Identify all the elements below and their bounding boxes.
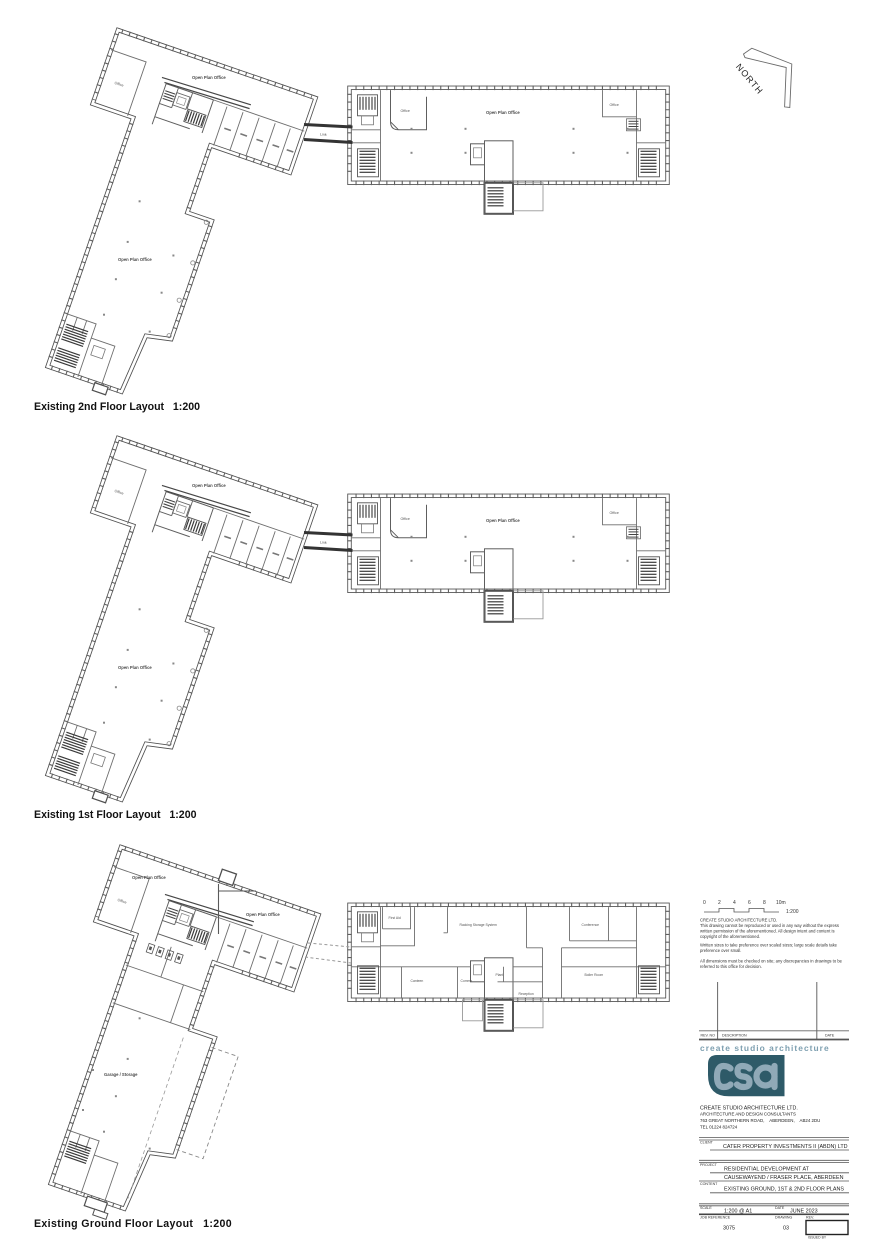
svg-text:TEL 01224 824724: TEL 01224 824724 bbox=[700, 1125, 738, 1130]
svg-text:DESCRIPTION: DESCRIPTION bbox=[722, 1034, 747, 1038]
svg-text:Written sizes to take preferen: Written sizes to take preference over sc… bbox=[700, 943, 838, 948]
svg-text:Open Plan Office: Open Plan Office bbox=[118, 665, 152, 670]
svg-text:preference over small.: preference over small. bbox=[700, 948, 741, 953]
svg-text:All dimensions must be checked: All dimensions must be checked on site; … bbox=[700, 959, 843, 964]
svg-text:Racking Storage System: Racking Storage System bbox=[460, 923, 497, 927]
svg-text:Open Plan Office: Open Plan Office bbox=[132, 875, 166, 880]
svg-text:CATER PROPERTY INVESTMENTS II: CATER PROPERTY INVESTMENTS II (ABDN) LTD bbox=[723, 1144, 848, 1150]
svg-text:CONTENT: CONTENT bbox=[700, 1182, 718, 1186]
svg-text:SCALE: SCALE bbox=[700, 1206, 712, 1210]
svg-text:Open Plan Office: Open Plan Office bbox=[118, 257, 152, 262]
svg-text:referred to this office for de: referred to this office for decision. bbox=[700, 964, 762, 969]
svg-text:3075: 3075 bbox=[723, 1226, 735, 1232]
svg-text:1:200: 1:200 bbox=[786, 909, 799, 915]
svg-text:create studio architecture: create studio architecture bbox=[700, 1043, 830, 1053]
svg-text:CAUSEWAYEND / FRASER PLACE, AB: CAUSEWAYEND / FRASER PLACE, ABERDEEN bbox=[724, 1175, 844, 1181]
svg-text:8: 8 bbox=[763, 900, 766, 906]
svg-text:2: 2 bbox=[718, 900, 721, 906]
svg-text:Canteen: Canteen bbox=[411, 979, 424, 983]
svg-text:CREATE STUDIO ARCHITECTURE LTD: CREATE STUDIO ARCHITECTURE LTD. bbox=[700, 918, 777, 923]
svg-text:Conference: Conference bbox=[582, 923, 600, 927]
svg-text:Existing 2nd Floor Layout 1:: Existing 2nd Floor Layout 1:200 bbox=[34, 401, 200, 413]
svg-text:Link: Link bbox=[320, 541, 327, 545]
svg-text:ARCHITECTURE AND DESIGN CONSUL: ARCHITECTURE AND DESIGN CONSULTANTS bbox=[700, 1112, 796, 1117]
svg-text:Link: Link bbox=[320, 133, 327, 137]
svg-text:4: 4 bbox=[733, 900, 736, 906]
svg-text:Open Plan Office: Open Plan Office bbox=[486, 518, 520, 523]
svg-text:Office: Office bbox=[610, 103, 619, 107]
svg-text:RESIDENTIAL DEVELOPMENT AT: RESIDENTIAL DEVELOPMENT AT bbox=[724, 1167, 810, 1173]
svg-text:Open Plan Office: Open Plan Office bbox=[192, 75, 226, 80]
svg-text:REV. NO: REV. NO bbox=[701, 1034, 716, 1038]
svg-text:REV.: REV. bbox=[806, 1216, 814, 1220]
svg-text:Open Plan Office: Open Plan Office bbox=[246, 912, 280, 917]
svg-text:10m: 10m bbox=[776, 900, 786, 906]
svg-text:JOB REFERENCE: JOB REFERENCE bbox=[700, 1216, 731, 1220]
svg-text:763 GREAT NORTHERN ROAD, AB: 763 GREAT NORTHERN ROAD, ABERDEEN, AB24 … bbox=[700, 1118, 820, 1123]
svg-text:Office: Office bbox=[610, 511, 619, 515]
svg-text:03: 03 bbox=[783, 1226, 789, 1232]
svg-text:Plant: Plant bbox=[496, 973, 504, 977]
svg-text:Existing 1st Floor Layout 1:: Existing 1st Floor Layout 1:200 bbox=[34, 809, 197, 821]
svg-text:Garage / Storage: Garage / Storage bbox=[104, 1072, 138, 1077]
svg-text:Existing Ground Floor Layout: Existing Ground Floor Layout 1:200 bbox=[34, 1218, 232, 1230]
svg-text:DRAWING: DRAWING bbox=[775, 1216, 792, 1220]
svg-text:copyright of the aforementione: copyright of the aforementioned. bbox=[700, 934, 760, 939]
svg-text:EXISTING GROUND, 1ST & 2ND FLO: EXISTING GROUND, 1ST & 2ND FLOOR PLANS bbox=[724, 1187, 844, 1193]
svg-text:PROJECT: PROJECT bbox=[700, 1163, 718, 1167]
svg-text:DATE: DATE bbox=[825, 1034, 835, 1038]
svg-text:0: 0 bbox=[703, 900, 706, 906]
svg-text:Boiler Room: Boiler Room bbox=[585, 973, 604, 977]
svg-text:ISSUED BY: ISSUED BY bbox=[808, 1236, 827, 1240]
svg-text:Reception: Reception bbox=[519, 992, 534, 996]
svg-text:Open Plan Office: Open Plan Office bbox=[486, 110, 520, 115]
svg-text:CLIENT: CLIENT bbox=[700, 1141, 714, 1145]
svg-text:DATE: DATE bbox=[775, 1206, 785, 1210]
svg-text:Comms: Comms bbox=[461, 979, 473, 983]
svg-text:First Aid: First Aid bbox=[389, 916, 401, 920]
svg-text:This drawing cannot be reprodu: This drawing cannot be reproduced or use… bbox=[700, 923, 839, 928]
svg-text:6: 6 bbox=[748, 900, 751, 906]
svg-text:Office: Office bbox=[401, 109, 410, 113]
svg-text:Office: Office bbox=[401, 517, 410, 521]
svg-text:written permission of the afor: written permission of the aforementioned… bbox=[700, 929, 835, 934]
svg-text:Open Plan Office: Open Plan Office bbox=[192, 483, 226, 488]
